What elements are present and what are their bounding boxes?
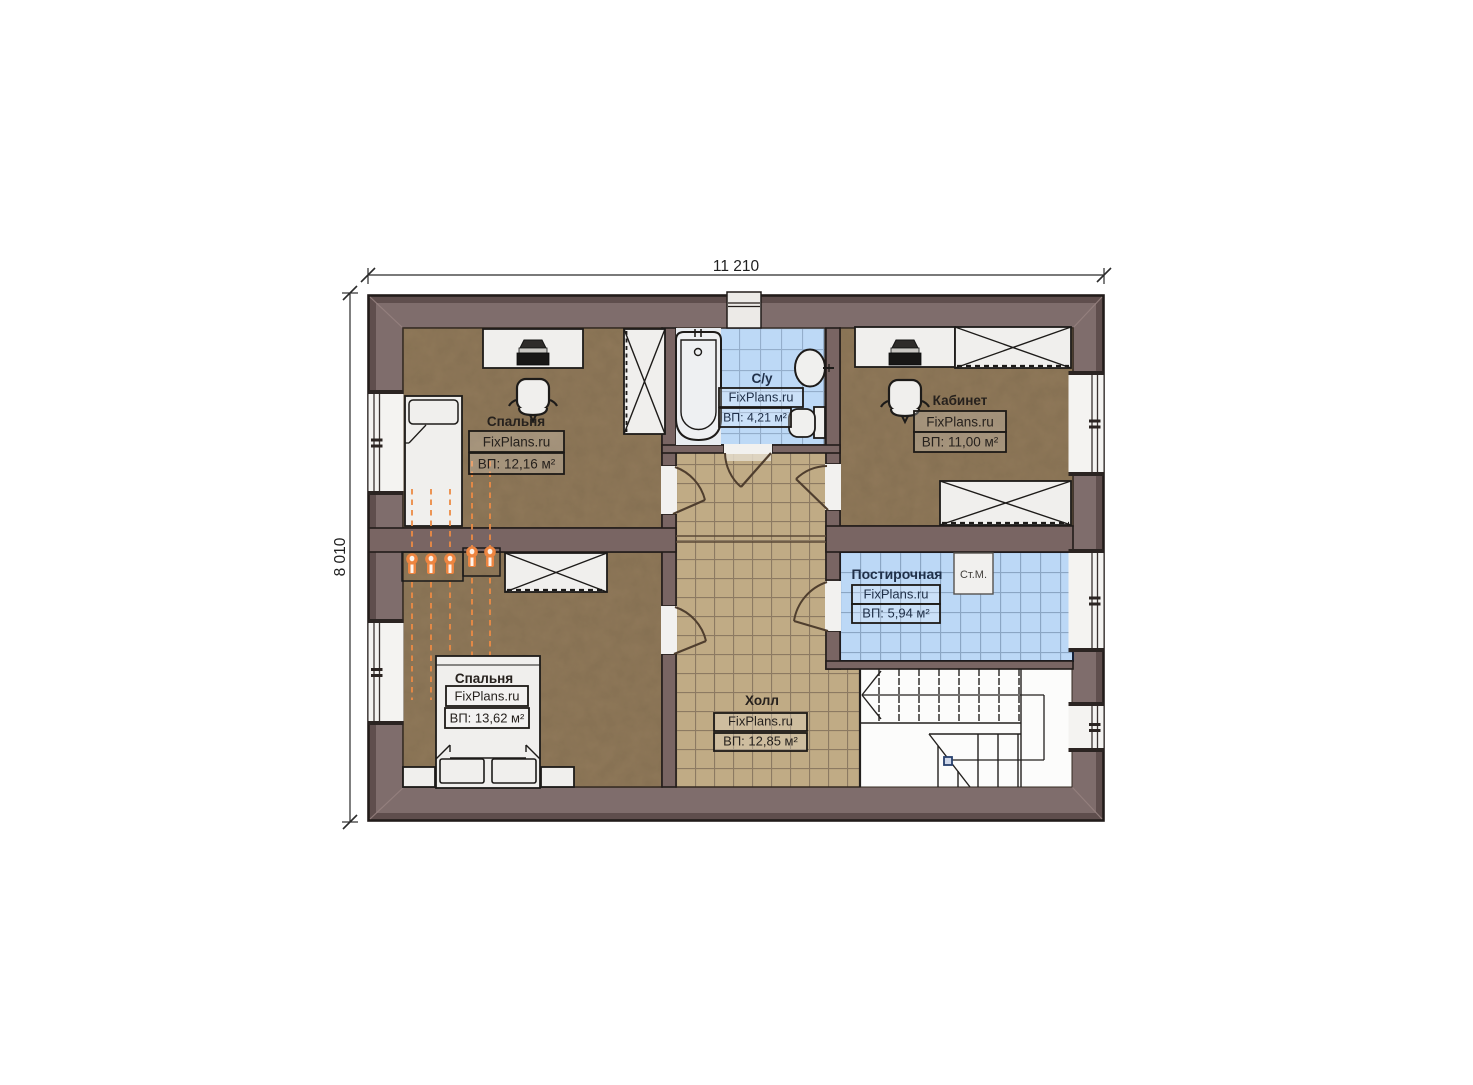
svg-text:FixPlans.ru: FixPlans.ru [926, 415, 994, 430]
svg-text:Холл: Холл [745, 693, 779, 708]
svg-text:FixPlans.ru: FixPlans.ru [728, 390, 793, 405]
svg-text:8 010: 8 010 [332, 537, 349, 576]
svg-text:FixPlans.ru: FixPlans.ru [728, 714, 793, 729]
svg-text:Спальня: Спальня [455, 671, 513, 686]
svg-text:ВП: 4,21 м²: ВП: 4,21 м² [723, 411, 787, 425]
svg-text:FixPlans.ru: FixPlans.ru [483, 435, 551, 450]
svg-text:ВП: 12,85 м²: ВП: 12,85 м² [723, 734, 798, 749]
svg-text:ВП: 5,94 м²: ВП: 5,94 м² [862, 606, 930, 621]
svg-text:FixPlans.ru: FixPlans.ru [454, 689, 519, 704]
svg-text:Спальня: Спальня [487, 414, 545, 429]
svg-text:ВП: 12,16 м²: ВП: 12,16 м² [478, 457, 556, 472]
svg-text:11 210: 11 210 [713, 258, 760, 275]
svg-text:Кабинет: Кабинет [933, 393, 988, 408]
svg-text:ВП: 11,00 м²: ВП: 11,00 м² [922, 435, 999, 450]
svg-text:FixPlans.ru: FixPlans.ru [863, 587, 928, 602]
svg-text:Постирочная: Постирочная [852, 566, 943, 582]
svg-text:Ст.М.: Ст.М. [960, 569, 987, 581]
svg-text:С/у: С/у [751, 371, 773, 386]
svg-text:ВП: 13,62 м²: ВП: 13,62 м² [450, 711, 525, 726]
